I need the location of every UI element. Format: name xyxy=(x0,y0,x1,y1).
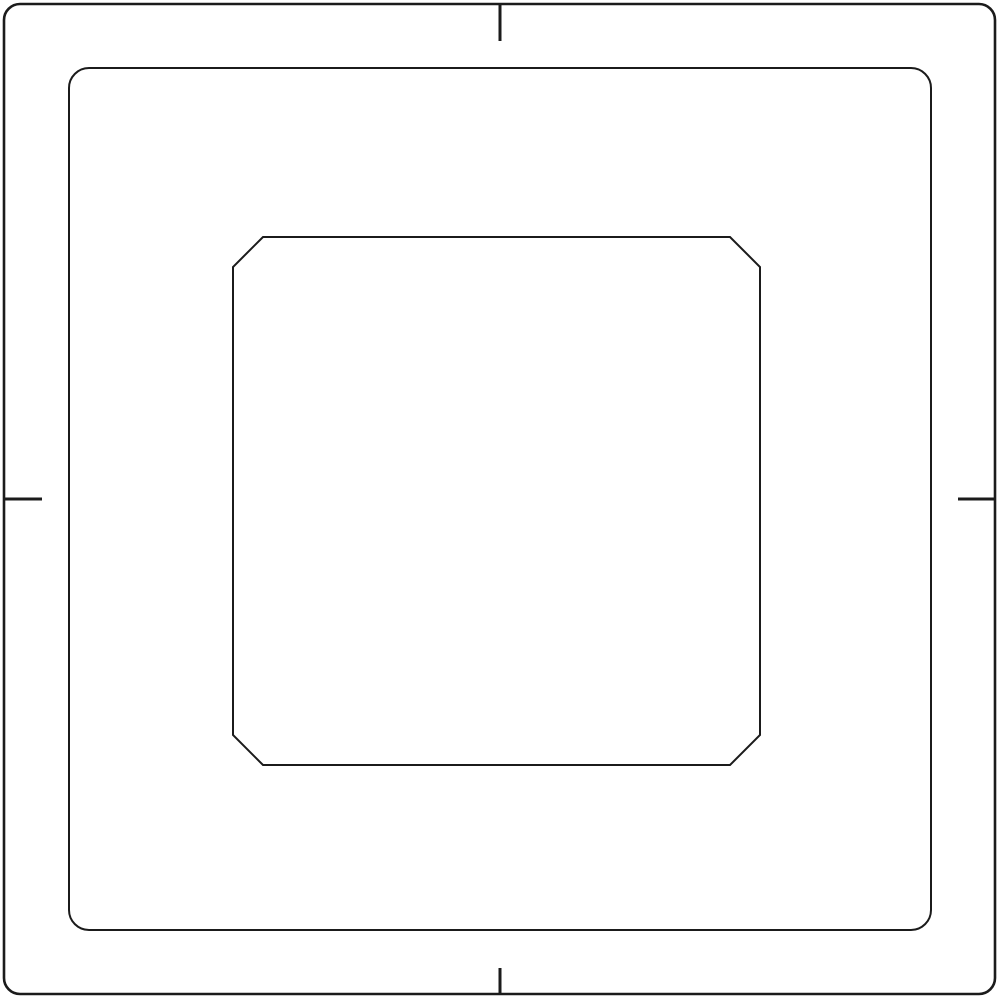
outer-frame-outline xyxy=(4,4,995,994)
middle-frame-outline xyxy=(69,68,931,930)
template-canvas xyxy=(0,0,1000,1000)
inner-window-outline xyxy=(233,237,760,765)
stencil-template-drawing xyxy=(0,0,1000,1000)
